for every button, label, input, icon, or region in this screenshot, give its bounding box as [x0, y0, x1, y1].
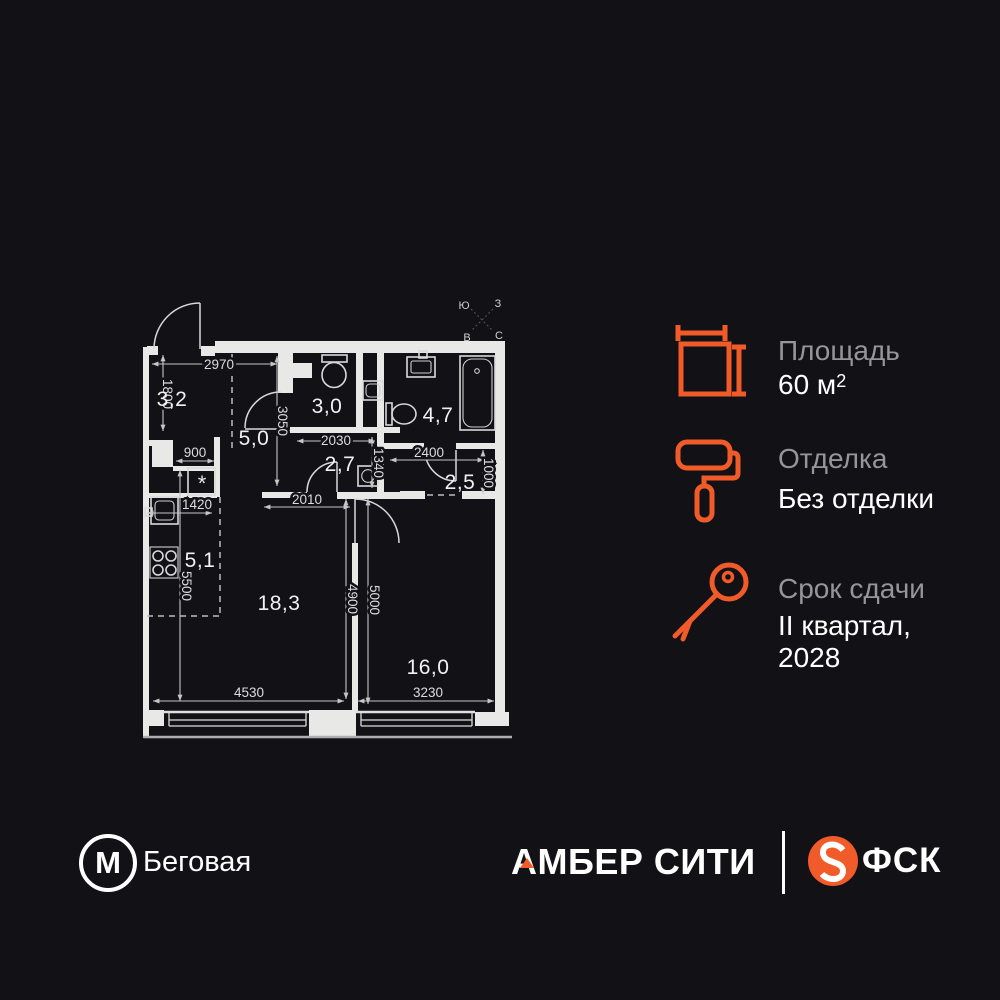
- compass-north: С: [495, 330, 503, 342]
- toilet-icon: [322, 355, 347, 388]
- area-label: Площадь: [778, 335, 900, 367]
- developer-logo-icon: [808, 836, 858, 886]
- area-value-sup: 2: [836, 371, 846, 391]
- dim-2970: 2970: [204, 357, 234, 372]
- project-logo-accent-triangle: [520, 858, 534, 868]
- room-entry: 3,2: [157, 388, 188, 411]
- dim-5500: 5500: [179, 571, 194, 601]
- finish-label: Отделка: [778, 443, 887, 475]
- room-wardrobe: 2,7: [325, 453, 356, 476]
- paint-roller-icon: [668, 435, 752, 527]
- bathtub-icon: [460, 356, 495, 430]
- dim-4530: 4530: [234, 685, 264, 700]
- footer-divider: [782, 831, 785, 894]
- floor-plan: * 2970 1800 900 3050 2030: [138, 278, 520, 760]
- dim-1420: 1420: [182, 497, 212, 512]
- project-logo: АМБЕР СИТИ: [511, 841, 756, 883]
- key-icon: [664, 550, 756, 658]
- dim-4900: 4900: [345, 584, 360, 614]
- kitchen-sink-icon: [145, 497, 178, 524]
- toilet-icon-2: [386, 403, 416, 425]
- dim-2030: 2030: [321, 433, 351, 448]
- compass-icon: Ю З В С: [458, 298, 503, 344]
- dim-2400: 2400: [414, 445, 444, 460]
- stove-icon: [150, 547, 178, 578]
- dim-5000: 5000: [367, 585, 382, 615]
- dim-3230: 3230: [413, 685, 443, 700]
- developer-logo-text: ФСК: [862, 841, 942, 881]
- area-icon: [668, 318, 752, 404]
- dim-900: 900: [184, 445, 207, 460]
- apartment-card: * 2970 1800 900 3050 2030: [0, 0, 1000, 1000]
- metro-icon: М: [79, 834, 137, 892]
- deadline-value-line2: 2028: [778, 642, 840, 674]
- room-living: 18,3: [258, 592, 301, 615]
- dim-2010: 2010: [292, 492, 322, 507]
- compass-east: В: [463, 332, 470, 344]
- room-bathroom: 4,7: [423, 404, 454, 427]
- washer-mark: *: [198, 471, 207, 496]
- room-hallway: 5,0: [239, 427, 270, 450]
- room-wc: 3,0: [312, 395, 343, 418]
- area-value: 60 м2: [778, 369, 846, 401]
- room-storage: 2,5: [445, 471, 476, 494]
- dim-1000: 1000: [481, 458, 496, 488]
- metro-letter: М: [95, 845, 121, 881]
- compass-west: З: [495, 298, 502, 310]
- sink-icon: [407, 351, 435, 377]
- metro-station-name: Беговая: [143, 846, 251, 879]
- washer-place-icon: *: [188, 468, 215, 496]
- room-bedroom: 16,0: [407, 656, 450, 679]
- fixtures: *: [145, 351, 495, 578]
- finish-value: Без отделки: [778, 483, 934, 515]
- dim-3050: 3050: [275, 406, 290, 436]
- dim-1340: 1340: [371, 448, 386, 478]
- deadline-value-line1: II квартал,: [778, 610, 911, 642]
- deadline-label: Срок сдачи: [778, 573, 925, 605]
- room-kitchen: 5,1: [185, 549, 216, 572]
- compass-south: Ю: [458, 300, 469, 312]
